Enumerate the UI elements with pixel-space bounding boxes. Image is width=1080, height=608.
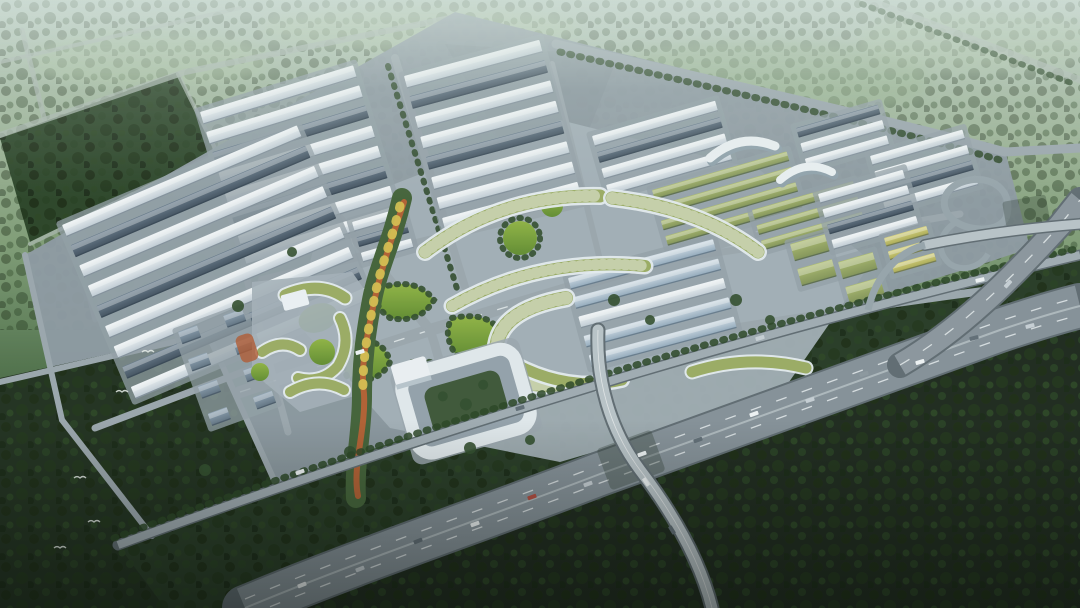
industrial-park-aerial-rendering bbox=[0, 0, 1080, 608]
bottom-vignette bbox=[0, 420, 1080, 608]
aerial-rendering-stage bbox=[0, 0, 1080, 608]
haze-overlay bbox=[0, 0, 1080, 200]
